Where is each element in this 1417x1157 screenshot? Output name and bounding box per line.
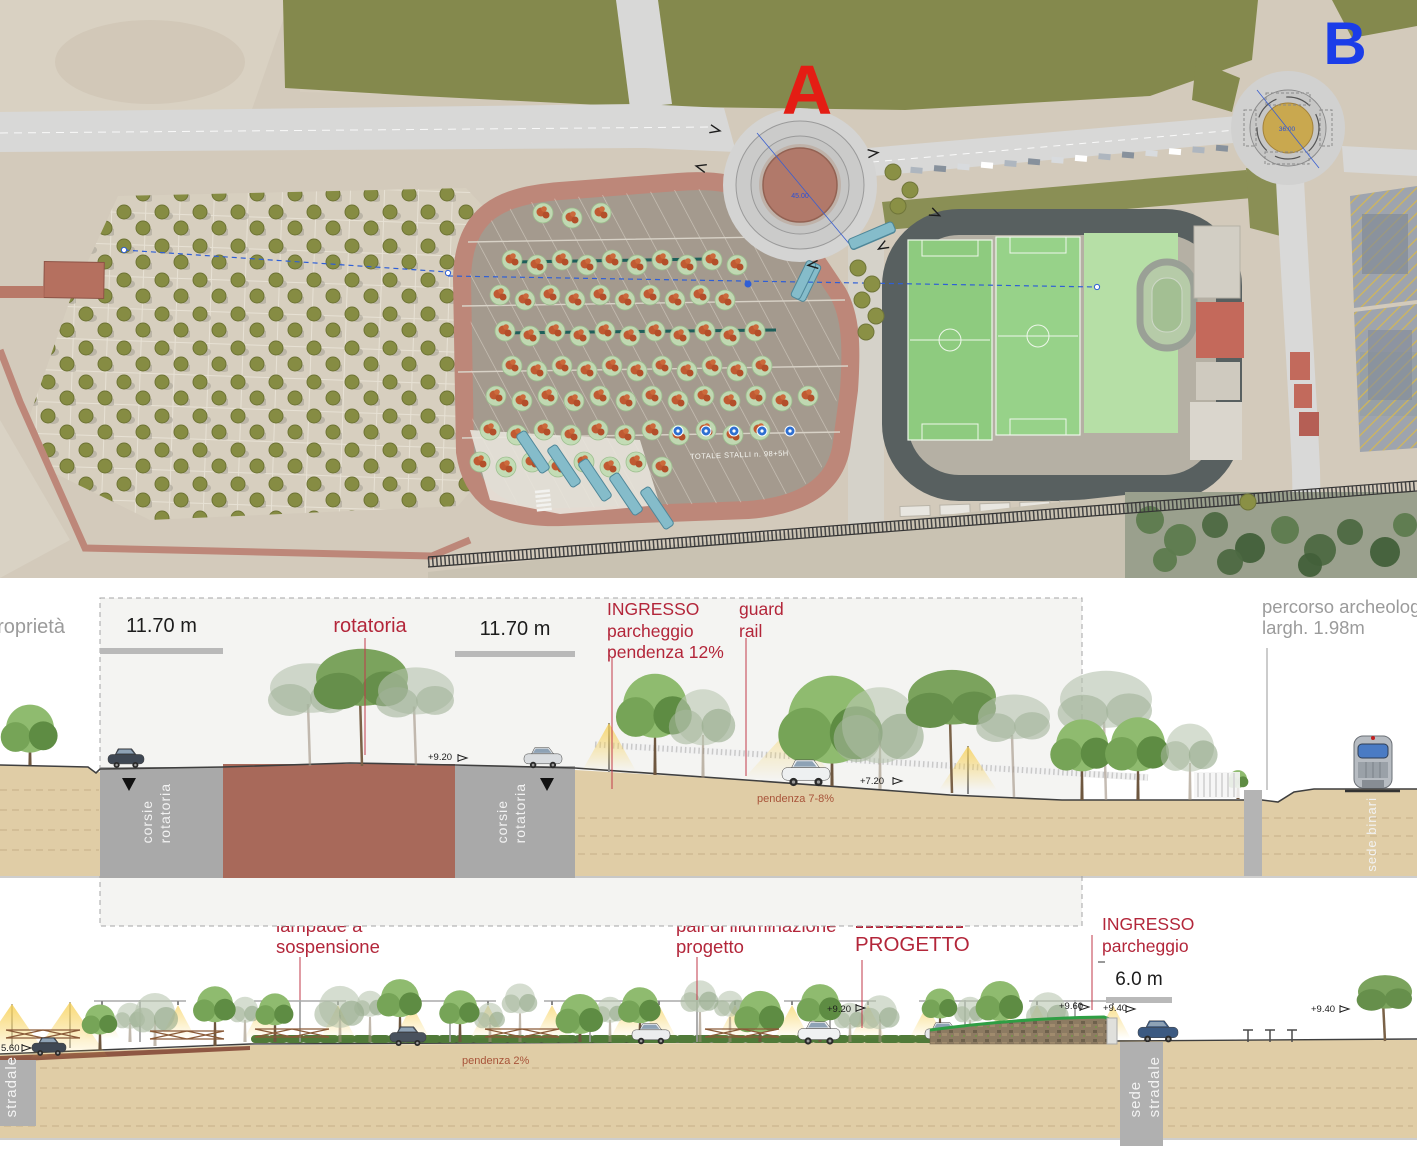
car-icon	[1138, 1021, 1178, 1043]
parking-tree-icon	[746, 386, 766, 406]
parking-tree-icon	[616, 391, 636, 411]
tree-icon	[314, 986, 364, 1042]
parked-car-icon	[1122, 151, 1134, 158]
pitch-2	[996, 237, 1080, 435]
elevation-920: +9.20	[428, 752, 452, 763]
guard-rail-label: guardrail	[739, 599, 784, 642]
parking-tree-icon	[727, 361, 747, 381]
ingresso-parcheggio-label-2: INGRESSOparcheggio	[1102, 914, 1194, 957]
parking-tree-icon	[590, 386, 610, 406]
parking-tree-icon	[545, 321, 565, 341]
parking-tree-icon	[552, 356, 572, 376]
roundabout-b: 36.00	[1231, 71, 1345, 185]
parking-tree-icon	[538, 386, 558, 406]
percorso-archeologico-label: percorso archeologicolargh. 1.98m	[1262, 596, 1417, 638]
tree-icon	[1298, 553, 1322, 577]
parked-car-icon	[1169, 148, 1181, 155]
section-street	[0, 930, 1417, 1157]
parking-tree-icon	[496, 457, 516, 477]
orchard	[30, 188, 520, 520]
parking-tree-icon	[534, 420, 554, 440]
pine-tree-icon	[1357, 975, 1412, 1041]
parking-tree-icon	[702, 250, 722, 270]
olive-tree-icon	[854, 292, 870, 308]
tree-icon	[680, 980, 718, 1042]
sede-binari-label: sede binari	[1364, 797, 1379, 872]
parking-tree-icon	[564, 391, 584, 411]
parking-tree-icon	[668, 391, 688, 411]
parking-tree-icon	[602, 250, 622, 270]
parking-tree-icon	[642, 420, 662, 440]
parking-tree-icon	[588, 420, 608, 440]
olive-tree-icon	[850, 260, 866, 276]
site-plan-aerial: TOTALE STALLI n. 98+5H	[0, 0, 1417, 578]
ground-strata	[0, 1040, 1417, 1139]
parking-tree-icon	[577, 255, 597, 275]
dimension-bar	[455, 651, 575, 657]
parking-tree-icon	[798, 386, 818, 406]
parking-tree-icon	[515, 290, 535, 310]
corsie-rotatoria-label-left: corsierotatoria	[139, 783, 173, 843]
parking-tree-icon	[527, 255, 547, 275]
parking-tree-icon	[720, 391, 740, 411]
parking-tree-icon	[695, 321, 715, 341]
parking-tree-icon	[570, 326, 590, 346]
roundabout-b-diameter-label: 36.00	[1279, 126, 1296, 133]
dimension-left: 11.70 m	[100, 615, 223, 639]
parking-tree-icon	[490, 285, 510, 305]
parking-tree-icon	[591, 203, 611, 223]
parking-tree-icon	[577, 361, 597, 381]
parking-tree-icon	[626, 452, 646, 472]
elevation-940a: +9.40	[1103, 1003, 1127, 1014]
parking-tree-icon	[627, 361, 647, 381]
marker-b-label: B	[1323, 10, 1366, 77]
marker-a-label: A	[782, 51, 833, 129]
parked-car-icon	[910, 167, 922, 174]
parking-tree-icon	[702, 356, 722, 376]
parking-tree-icon	[652, 457, 672, 477]
parking-tree-icon	[665, 290, 685, 310]
sede-stradale-label-left: sedestradale	[0, 1056, 20, 1117]
truck-icon	[900, 505, 930, 516]
parking-tree-icon	[595, 321, 615, 341]
roundabout-a-diameter-label: 45.00	[791, 193, 809, 200]
tree-icon	[1153, 548, 1177, 572]
tree-icon	[1105, 717, 1169, 800]
parking-tree-icon	[627, 255, 647, 275]
parking-tree-icon	[486, 386, 506, 406]
rotatoria-label: rotatoria	[310, 615, 430, 639]
elevation-940b: +9.40	[1311, 1004, 1335, 1015]
pendenza-78-label: pendenza 7-8%	[757, 793, 834, 806]
tree-icon	[1217, 549, 1243, 575]
parking-tree-icon	[677, 361, 697, 381]
parking-tree-icon	[495, 321, 515, 341]
parking-tree-icon	[562, 208, 582, 228]
parked-car-icon	[981, 162, 993, 169]
parking-tree-icon	[752, 356, 772, 376]
parking-tree-icon	[527, 361, 547, 381]
elevation-720: +7.20	[860, 776, 884, 787]
parking-tree-icon	[502, 356, 522, 376]
parking-tree-icon	[620, 326, 640, 346]
progetto-label: PROGETTO	[855, 933, 970, 957]
tree-icon	[1370, 537, 1400, 567]
parking-tree-icon	[694, 386, 714, 406]
plan-and-sections-board: TOTALE STALLI n. 98+5H	[0, 0, 1417, 1157]
parking-tree-icon	[615, 425, 635, 445]
parking-tree-icon	[502, 250, 522, 270]
parking-tree-icon	[652, 250, 672, 270]
parking-tree-icon	[561, 425, 581, 445]
parking-tree-icon	[470, 452, 490, 472]
parked-car-icon	[1028, 158, 1040, 165]
tree-icon	[1, 705, 58, 765]
train-icon	[1345, 736, 1400, 791]
parking-tree-icon	[652, 356, 672, 376]
parked-car-icon	[1145, 150, 1157, 157]
olive-tree-icon	[864, 276, 880, 292]
parking-tree-icon	[615, 290, 635, 310]
olive-tree-icon	[868, 308, 884, 324]
parking-tree-icon	[677, 255, 697, 275]
tree-icon	[1271, 516, 1299, 544]
parking-tree-icon	[772, 391, 792, 411]
elevation-560: 5.60	[1, 1043, 20, 1054]
building-red-roof	[1196, 302, 1244, 358]
parking-tree-icon	[727, 255, 747, 275]
sede-stradale-label-right: sedestradale	[1127, 1056, 1163, 1117]
elevation-960: +9.60	[1059, 1001, 1083, 1012]
dimension-right: 11.70 m	[455, 618, 575, 642]
parking-tree-icon	[480, 420, 500, 440]
parking-tree-icon	[642, 386, 662, 406]
parked-car-icon	[1098, 153, 1110, 160]
parking-tree-icon	[520, 326, 540, 346]
retaining-wall	[1244, 790, 1262, 876]
parking-tree-icon	[720, 326, 740, 346]
corsie-rotatoria-label-right: corsierotatoria	[494, 783, 528, 843]
parked-car-icon	[1051, 157, 1063, 164]
parking-tree-icon	[540, 285, 560, 305]
property-label: proprietà	[0, 616, 65, 640]
parking-tree-icon	[715, 290, 735, 310]
olive-tree-icon	[1240, 494, 1256, 510]
parking-tree-icon	[533, 203, 553, 223]
rotatoria-block	[223, 764, 455, 878]
parking-tree-icon	[690, 285, 710, 305]
parking-tree-icon	[640, 285, 660, 305]
parking-tree-icon	[670, 326, 690, 346]
parking-tree-icon	[602, 356, 622, 376]
tree-icon	[1337, 519, 1363, 545]
pendenza-2-label: pendenza 2%	[462, 1055, 529, 1068]
olive-tree-icon	[885, 164, 901, 180]
white-fence	[1194, 772, 1240, 798]
parking-tree-icon	[745, 321, 765, 341]
olive-tree-icon	[890, 198, 906, 214]
pitch-1	[908, 240, 992, 440]
olive-tree-icon	[902, 182, 918, 198]
tree-icon	[1202, 512, 1228, 538]
parking-tree-icon	[590, 285, 610, 305]
green-field	[283, 0, 1258, 110]
parking-tree-icon	[645, 321, 665, 341]
elevation-920b: +9.20	[827, 1004, 851, 1015]
ingresso-parcheggio-label: INGRESSOparcheggiopendenza 12%	[607, 599, 724, 664]
parked-car-icon	[1192, 146, 1204, 153]
parking-tree-icon	[512, 391, 532, 411]
tree-icon	[1393, 513, 1417, 537]
dimension-bar	[100, 648, 223, 654]
parked-car-icon	[1075, 155, 1087, 162]
dimension-6m: 6.0 m	[1106, 969, 1172, 991]
parked-car-icon	[1216, 145, 1228, 152]
parked-car-icon	[934, 165, 946, 172]
parking-tree-icon	[565, 290, 585, 310]
parked-car-icon	[957, 163, 969, 170]
olive-tree-icon	[858, 324, 874, 340]
parking-tree-icon	[552, 250, 572, 270]
parked-car-icon	[1004, 160, 1016, 167]
